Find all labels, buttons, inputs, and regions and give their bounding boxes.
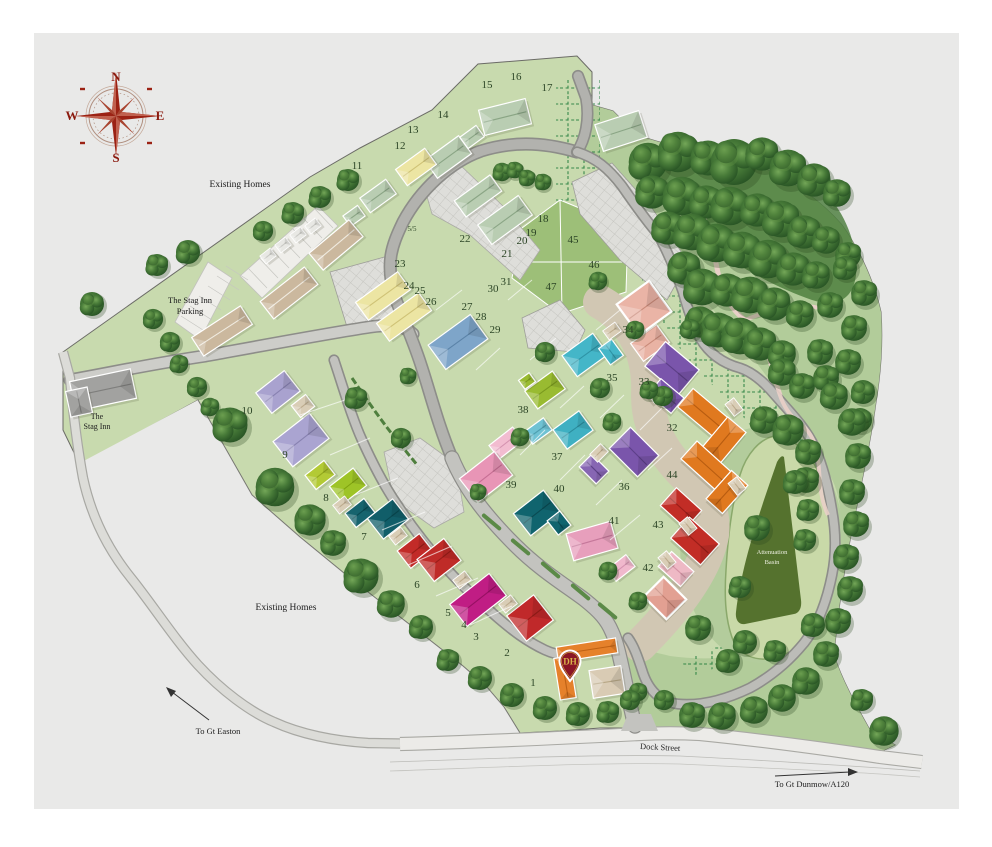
- svg-text:36: 36: [619, 481, 631, 493]
- svg-text:E: E: [156, 108, 165, 123]
- svg-text:29: 29: [490, 324, 502, 336]
- svg-text:17: 17: [542, 82, 554, 94]
- svg-text:42: 42: [643, 562, 654, 574]
- svg-text:Basin: Basin: [765, 559, 781, 566]
- svg-text:Parking: Parking: [177, 306, 204, 316]
- svg-text:7: 7: [361, 531, 367, 543]
- svg-text:S: S: [112, 150, 119, 165]
- svg-text:14: 14: [438, 109, 450, 121]
- svg-text:38: 38: [518, 404, 530, 416]
- svg-text:15: 15: [482, 79, 494, 91]
- svg-text:4: 4: [461, 619, 467, 631]
- svg-text:The: The: [91, 412, 104, 421]
- svg-text:21: 21: [502, 248, 513, 260]
- svg-text:34: 34: [623, 324, 635, 336]
- svg-text:28: 28: [476, 311, 488, 323]
- svg-text:24: 24: [404, 280, 416, 292]
- svg-text:2: 2: [504, 647, 510, 659]
- svg-text:11: 11: [352, 160, 363, 172]
- svg-text:16: 16: [511, 71, 523, 83]
- svg-text:Attenuation: Attenuation: [757, 549, 788, 556]
- svg-text:26: 26: [426, 296, 438, 308]
- svg-text:N: N: [111, 69, 121, 84]
- svg-text:12: 12: [395, 140, 406, 152]
- svg-text:37: 37: [552, 451, 564, 463]
- svg-text:5: 5: [445, 607, 451, 619]
- svg-text:23: 23: [395, 258, 407, 270]
- svg-text:Existing Homes: Existing Homes: [256, 603, 317, 613]
- svg-text:40: 40: [554, 483, 566, 495]
- svg-text:41: 41: [609, 515, 620, 527]
- svg-text:5/5: 5/5: [408, 225, 417, 233]
- svg-text:22: 22: [460, 233, 471, 245]
- svg-text:9: 9: [282, 449, 288, 461]
- svg-text:To Gt Easton: To Gt Easton: [196, 726, 241, 736]
- svg-text:46: 46: [589, 259, 601, 271]
- svg-text:DH: DH: [563, 657, 577, 667]
- svg-text:1: 1: [530, 677, 536, 689]
- svg-text:43: 43: [653, 519, 665, 531]
- svg-text:8: 8: [323, 492, 329, 504]
- svg-text:To Gt Dunmow/A120: To Gt Dunmow/A120: [775, 779, 850, 789]
- svg-text:45: 45: [568, 234, 580, 246]
- svg-text:27: 27: [462, 301, 474, 313]
- svg-text:The Stag Inn: The Stag Inn: [168, 295, 213, 305]
- svg-text:13: 13: [408, 124, 420, 136]
- svg-text:33: 33: [639, 376, 651, 388]
- svg-text:18: 18: [538, 213, 550, 225]
- svg-text:35: 35: [607, 372, 619, 384]
- svg-text:44: 44: [667, 469, 679, 481]
- svg-text:32: 32: [667, 422, 678, 434]
- svg-text:W: W: [66, 108, 79, 123]
- svg-text:Stag Inn: Stag Inn: [84, 422, 111, 431]
- svg-text:30: 30: [488, 283, 500, 295]
- svg-text:47: 47: [546, 281, 558, 293]
- svg-text:10: 10: [242, 405, 254, 417]
- svg-text:31: 31: [501, 276, 512, 288]
- svg-text:Existing Homes: Existing Homes: [210, 180, 271, 190]
- svg-text:39: 39: [506, 479, 518, 491]
- svg-text:25: 25: [415, 285, 427, 297]
- svg-text:6: 6: [414, 579, 420, 591]
- svg-text:3: 3: [473, 631, 479, 643]
- svg-text:20: 20: [517, 235, 529, 247]
